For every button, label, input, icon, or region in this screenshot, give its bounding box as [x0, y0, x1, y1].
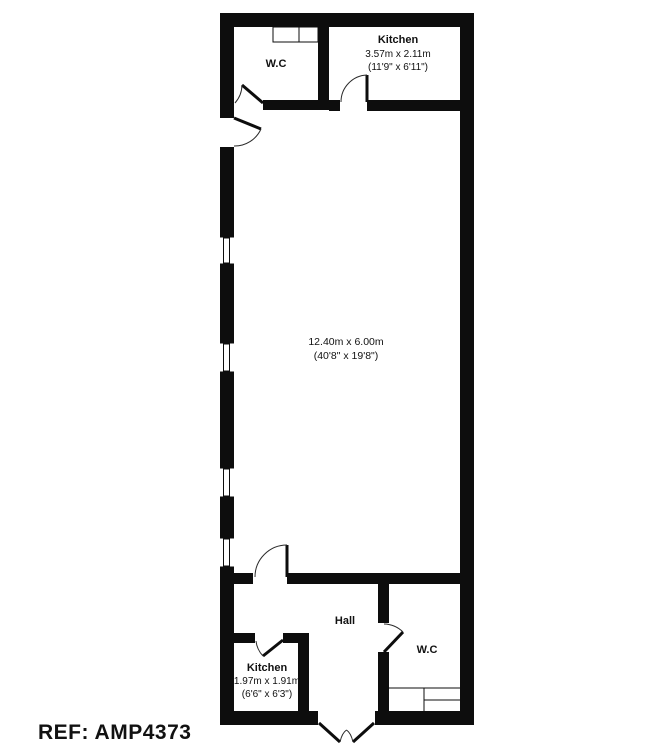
- hall-label: Hall: [335, 615, 355, 627]
- door-wc-top: [235, 85, 263, 103]
- door-main-hall: [255, 545, 287, 577]
- wall-kitchen-top-b: [367, 100, 460, 111]
- wc-top-label: W.C: [266, 58, 287, 70]
- wall-left-seg2: [220, 147, 234, 237]
- wall-hall-wc-a: [378, 573, 389, 623]
- wall-wc-top-right: [318, 27, 329, 110]
- door-kitchen-top: [341, 75, 367, 102]
- main-room-imperial: (40'8" x 19'8"): [314, 350, 379, 362]
- door-side-entrance: [234, 118, 261, 146]
- door-kitchen-bottom: [256, 640, 283, 656]
- wall-left-seg6: [220, 568, 234, 725]
- kitchen-top-name: Kitchen: [378, 34, 419, 46]
- entrance-double-door: [319, 723, 374, 742]
- sink-wc-top: [273, 27, 318, 42]
- wall-wc-top-bottom: [263, 100, 318, 110]
- wall-bottom-left: [220, 711, 318, 725]
- wall-main-hall-b: [287, 573, 460, 584]
- wall-bottom-right: [375, 711, 474, 725]
- wc-bottom-label: W.C: [417, 644, 438, 656]
- window-3: [220, 467, 234, 498]
- wall-kitchen-bottom-a: [234, 633, 255, 643]
- kitchen-bottom-imperial: (6'6" x 6'3"): [242, 689, 292, 700]
- doors: [234, 75, 403, 742]
- wall-left-seg1: [220, 13, 234, 118]
- main-room-metric: 12.40m x 6.00m: [308, 336, 384, 348]
- wall-left-seg4: [220, 373, 234, 468]
- reference-number: REF: AMP4373: [38, 721, 191, 744]
- sink-wc-bottom: [389, 688, 460, 711]
- kitchen-bottom-metric: 1.97m x 1.91m: [234, 676, 300, 687]
- floor-plan: W.C Kitchen 3.57m x 2.11m (11'9" x 6'11"…: [0, 0, 646, 744]
- kitchen-bottom-name: Kitchen: [247, 662, 288, 674]
- wall-kitchen-bottom-right: [298, 633, 309, 711]
- door-wc-bottom: [384, 624, 403, 652]
- window-1: [220, 236, 234, 265]
- wall-top: [220, 13, 474, 27]
- wall-left-seg3: [220, 265, 234, 343]
- kitchen-top-metric: 3.57m x 2.11m: [365, 49, 430, 60]
- fixtures: [273, 27, 460, 711]
- wall-hall-wc-b: [378, 652, 389, 711]
- window-2: [220, 342, 234, 373]
- interior-walls: [234, 27, 460, 711]
- window-4: [220, 537, 234, 568]
- wall-right: [460, 13, 474, 725]
- wall-kitchen-top-a: [329, 100, 340, 111]
- wall-main-hall-a: [234, 573, 253, 584]
- wall-left-seg5: [220, 498, 234, 538]
- kitchen-top-imperial: (11'9" x 6'11"): [368, 62, 428, 73]
